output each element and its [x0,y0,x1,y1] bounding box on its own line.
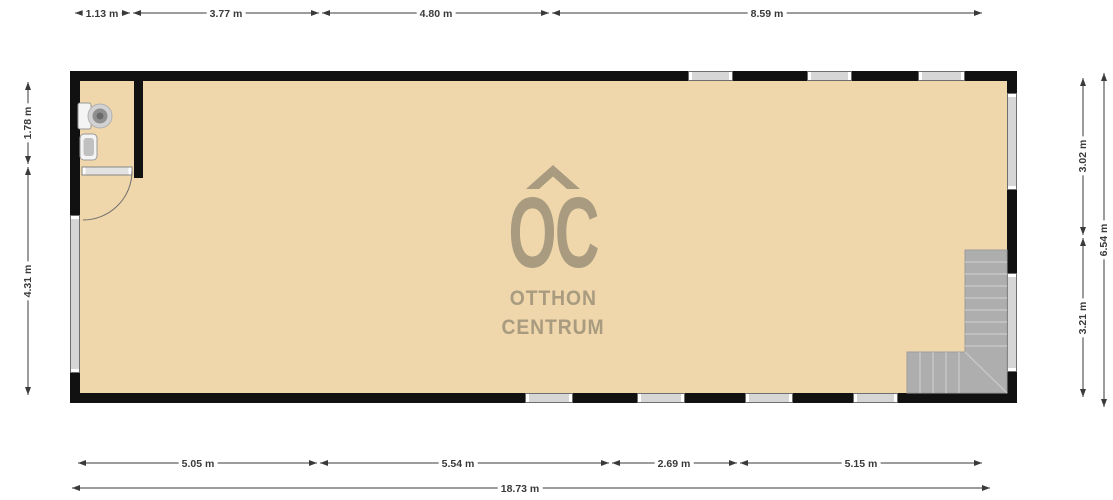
dim-label-top-1: 1.13 m [83,8,122,20]
dim-label-bottom-3: 2.69 m [655,458,694,470]
dim-label-right-inner-2: 3.21 m [1077,299,1089,338]
watermark-logo: OC OTTHON CENTRUM [481,163,625,343]
dim-label-bottom-4: 5.15 m [842,458,881,470]
window [525,393,573,403]
dim-label-right-total: 6.54 m [1098,221,1110,260]
window [745,393,793,403]
watermark-name-line1: OTTHON [509,285,596,314]
dim-label-right-inner-1: 3.02 m [1077,137,1089,176]
dim-label-top-4: 8.59 m [748,8,787,20]
window [1007,273,1017,372]
window [70,215,80,373]
dim-label-top-3: 4.80 m [417,8,456,20]
floorplan-canvas: OC OTTHON CENTRUM [0,0,1113,500]
window [918,71,965,81]
watermark-name-line2: CENTRUM [501,314,604,343]
watermark-initials: OC [508,196,597,270]
dim-label-left-1: 1.78 m [22,104,34,143]
dim-label-bottom-total: 18.73 m [498,483,543,495]
window [853,393,898,403]
window [807,71,852,81]
dim-label-bottom-1: 5.05 m [179,458,218,470]
wc-partition-wall [134,71,143,178]
dim-label-bottom-2: 5.54 m [439,458,478,470]
window [1007,93,1017,190]
dim-label-left-2: 4.31 m [22,262,34,301]
window [688,71,733,81]
window [637,393,685,403]
dim-label-top-2: 3.77 m [207,8,246,20]
